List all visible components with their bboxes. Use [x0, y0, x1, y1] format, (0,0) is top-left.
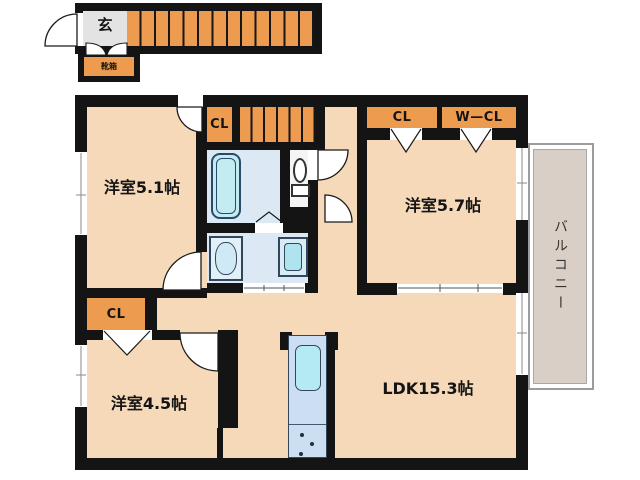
kitchen-sink-icon — [295, 345, 321, 391]
window — [75, 345, 87, 407]
entrance-label: 玄 — [85, 14, 125, 34]
room57-walkin-closet: W—CL — [442, 107, 516, 128]
door-opening — [178, 95, 203, 107]
window — [516, 293, 528, 375]
wall — [280, 150, 290, 225]
hall-closet-label: CL — [210, 117, 229, 132]
wall — [217, 428, 223, 460]
wall — [152, 330, 180, 340]
wall — [196, 107, 207, 252]
wall — [196, 142, 325, 150]
toilet-tank-icon — [291, 184, 310, 197]
room-51-label: 洋室5.1帖 — [88, 176, 196, 196]
room57-walkin-closet-label: W—CL — [455, 110, 502, 125]
wall — [218, 330, 238, 428]
kitchen-counter — [288, 335, 327, 458]
staircase-upper-icon — [240, 107, 315, 142]
window — [516, 148, 528, 220]
balcony-deck: バルコニー — [533, 149, 587, 384]
room45-closet-label: CL — [107, 307, 126, 322]
entrance-door-gap — [73, 13, 83, 46]
washing-machine-pan-icon — [209, 236, 243, 281]
bath-door-opening — [255, 223, 283, 233]
shoe-cabinet: 靴箱 — [84, 57, 134, 76]
wall — [327, 350, 335, 458]
wall — [503, 283, 516, 295]
closet-fold-opening — [103, 330, 152, 340]
room-57-label: 洋室5.7帖 — [385, 194, 501, 214]
room45-closet: CL — [87, 298, 145, 330]
wall — [87, 330, 103, 340]
balcony: バルコニー — [528, 143, 594, 390]
floor-plan: 玄 靴箱 CL CL W—CL CL — [0, 0, 640, 480]
room57-closet-label: CL — [393, 110, 412, 125]
balcony-label: バルコニー — [550, 219, 570, 314]
closet-fold-opening — [460, 128, 492, 140]
room57-closet: CL — [367, 107, 437, 128]
wall — [145, 298, 157, 330]
toilet-icon — [293, 158, 307, 183]
wall — [357, 107, 367, 295]
sliding-door — [243, 283, 305, 293]
ldk-label: LDK15.3帖 — [368, 377, 488, 397]
closet-fold-opening — [390, 128, 422, 140]
room-45-label: 洋室4.5帖 — [94, 392, 204, 412]
shoe-cabinet-label: 靴箱 — [101, 61, 117, 72]
sliding-door — [397, 284, 503, 293]
wall — [87, 288, 207, 298]
vanity-sink-icon — [278, 237, 308, 277]
bathtub-icon — [211, 153, 241, 219]
toilet-door-opening — [308, 150, 318, 180]
hall-closet: CL — [207, 107, 232, 142]
window — [75, 152, 87, 235]
staircase-lower-icon — [127, 11, 314, 46]
wall — [367, 283, 397, 295]
